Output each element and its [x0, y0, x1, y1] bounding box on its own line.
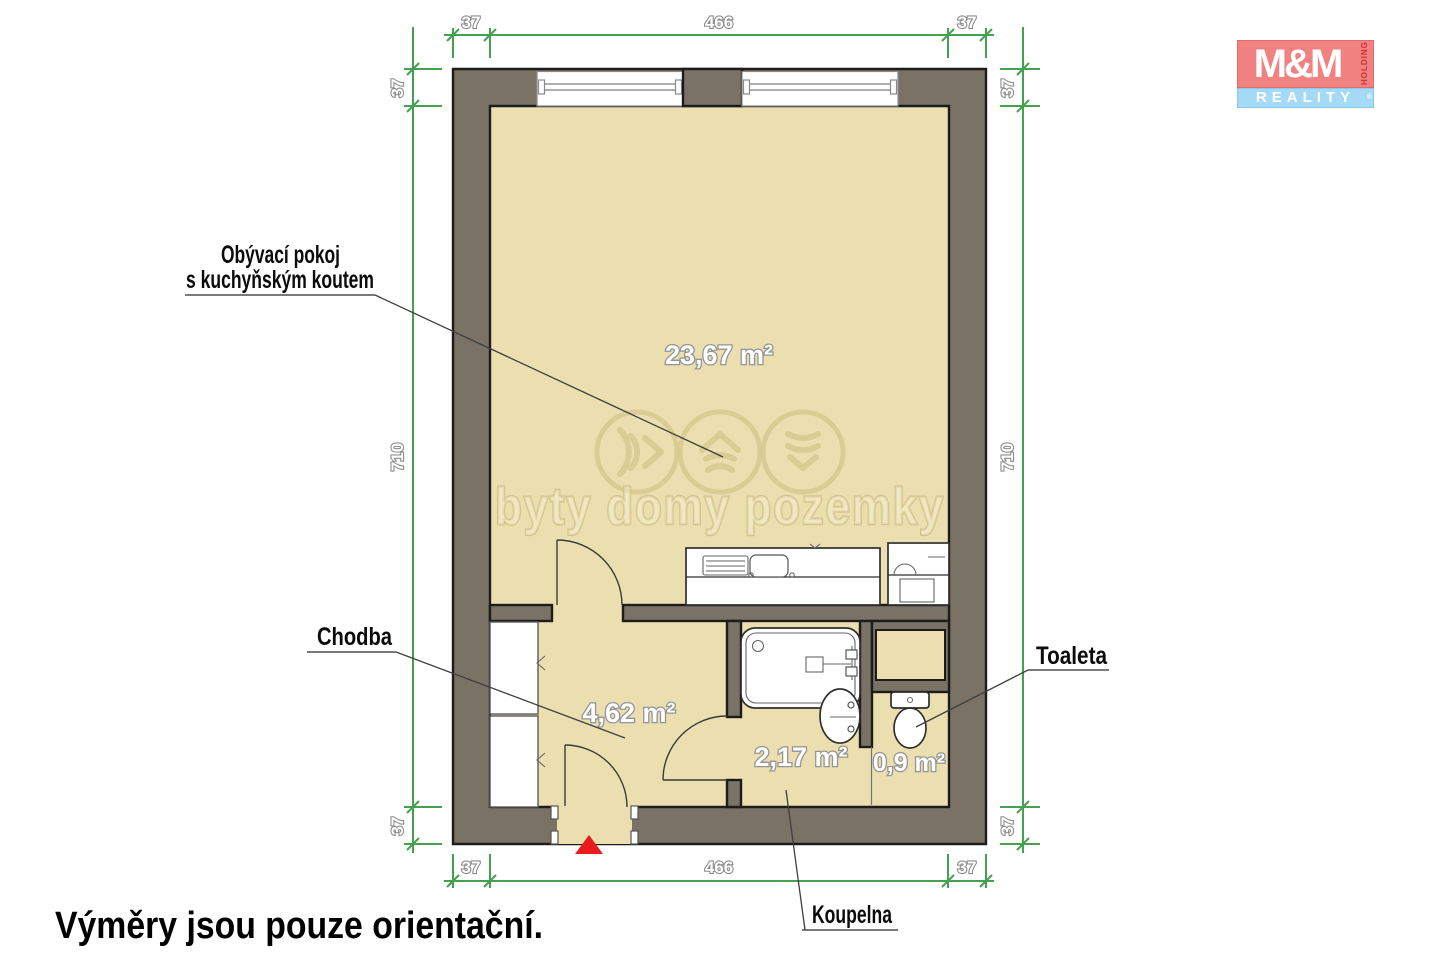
window-jamb — [744, 80, 750, 94]
bathroom-label: Koupelna — [812, 901, 893, 929]
dimension-top: 37 466 37 — [444, 13, 994, 58]
building: byty domy pozemky — [453, 69, 986, 854]
entrance-jamb — [631, 806, 638, 819]
closet-upper — [490, 622, 538, 714]
entrance-opening — [557, 806, 632, 845]
appliance-unit — [888, 543, 949, 605]
logo-reality-text: REALITY — [1256, 89, 1355, 106]
window-jamb — [676, 80, 682, 94]
dimension-bottom: 37 466 37 — [444, 854, 994, 888]
dim-bottom-left: 37 — [462, 858, 481, 877]
washbasin-knob — [848, 702, 854, 708]
dim-top-right: 37 — [958, 13, 977, 32]
dim-top-left: 37 — [462, 13, 481, 32]
window-jamb — [891, 80, 897, 94]
window-jamb — [539, 80, 545, 94]
floor-plan-canvas: byty domy pozemky — [0, 0, 1440, 960]
dim-right-bottom: 37 — [998, 817, 1017, 836]
living-label-line1: Obývací pokoj — [221, 241, 340, 269]
partition-living-right — [623, 605, 949, 621]
kitchen-counter — [686, 543, 949, 605]
toilet-area-label: 0,9 m² — [873, 749, 945, 777]
dimension-right: 37 710 37 — [998, 27, 1040, 853]
logo-top-band: M&M HOLDING — [1237, 40, 1374, 88]
washbasin — [820, 689, 860, 743]
sink-basin — [750, 555, 788, 577]
partition-bath-toilet — [860, 621, 872, 747]
entrance-jamb — [551, 831, 558, 844]
closet-lower — [490, 716, 538, 807]
partition-hall-bath-top — [727, 621, 741, 717]
partition-living-hall-left — [490, 605, 552, 621]
shaft-niche — [876, 630, 945, 680]
toilet-label: Toaleta — [1036, 642, 1108, 670]
living-label-line2: s kuchyňským koutem — [186, 266, 374, 294]
dim-left-top: 37 — [388, 79, 407, 98]
logo-holding-text: HOLDING — [1360, 45, 1370, 85]
faucet-valve — [846, 667, 857, 676]
watermark-text: byty domy pozemky — [495, 478, 945, 536]
dim-right-middle: 710 — [998, 443, 1017, 471]
logo-mm-text: M&M — [1238, 42, 1356, 86]
dim-top-center: 466 — [705, 13, 733, 32]
footer-note: Výměry jsou pouze orientační. — [55, 905, 543, 947]
toilet-fixture — [891, 692, 929, 748]
entrance-jamb — [551, 806, 558, 819]
dim-right-top: 37 — [998, 79, 1017, 98]
window-left — [537, 72, 683, 107]
partition-hall-bath-bottom — [727, 780, 741, 807]
window-pier — [683, 69, 742, 106]
hall-closet — [490, 622, 545, 807]
bathroom-area-label: 2,17 m² — [754, 742, 847, 772]
toilet-cistern — [891, 692, 929, 708]
living-area-label: 23,67 m² — [665, 340, 773, 370]
dimension-left: 37 710 37 — [388, 27, 442, 853]
toilet-bowl — [894, 708, 926, 748]
washbasin-bowl — [820, 689, 860, 743]
logo-bottom-band: REALITY ® — [1237, 88, 1374, 108]
hall-label: Chodba — [317, 623, 393, 651]
dim-left-bottom: 37 — [388, 817, 407, 836]
washbasin-knob — [848, 726, 854, 732]
dim-left-middle: 710 — [388, 443, 407, 471]
window-frame — [537, 72, 683, 107]
entrance-jamb — [631, 831, 638, 844]
faucet-valve — [846, 650, 857, 659]
floor-plan-page: byty domy pozemky — [0, 0, 1440, 960]
window-frame — [742, 72, 898, 107]
logo-registered-mark: ® — [1367, 89, 1372, 107]
dim-bottom-center: 466 — [705, 858, 733, 877]
window-right — [742, 72, 898, 107]
dim-bottom-right: 37 — [958, 858, 977, 877]
realty-logo: M&M HOLDING REALITY ® — [1237, 40, 1374, 108]
hall-area-label: 4,62 m² — [582, 698, 675, 728]
